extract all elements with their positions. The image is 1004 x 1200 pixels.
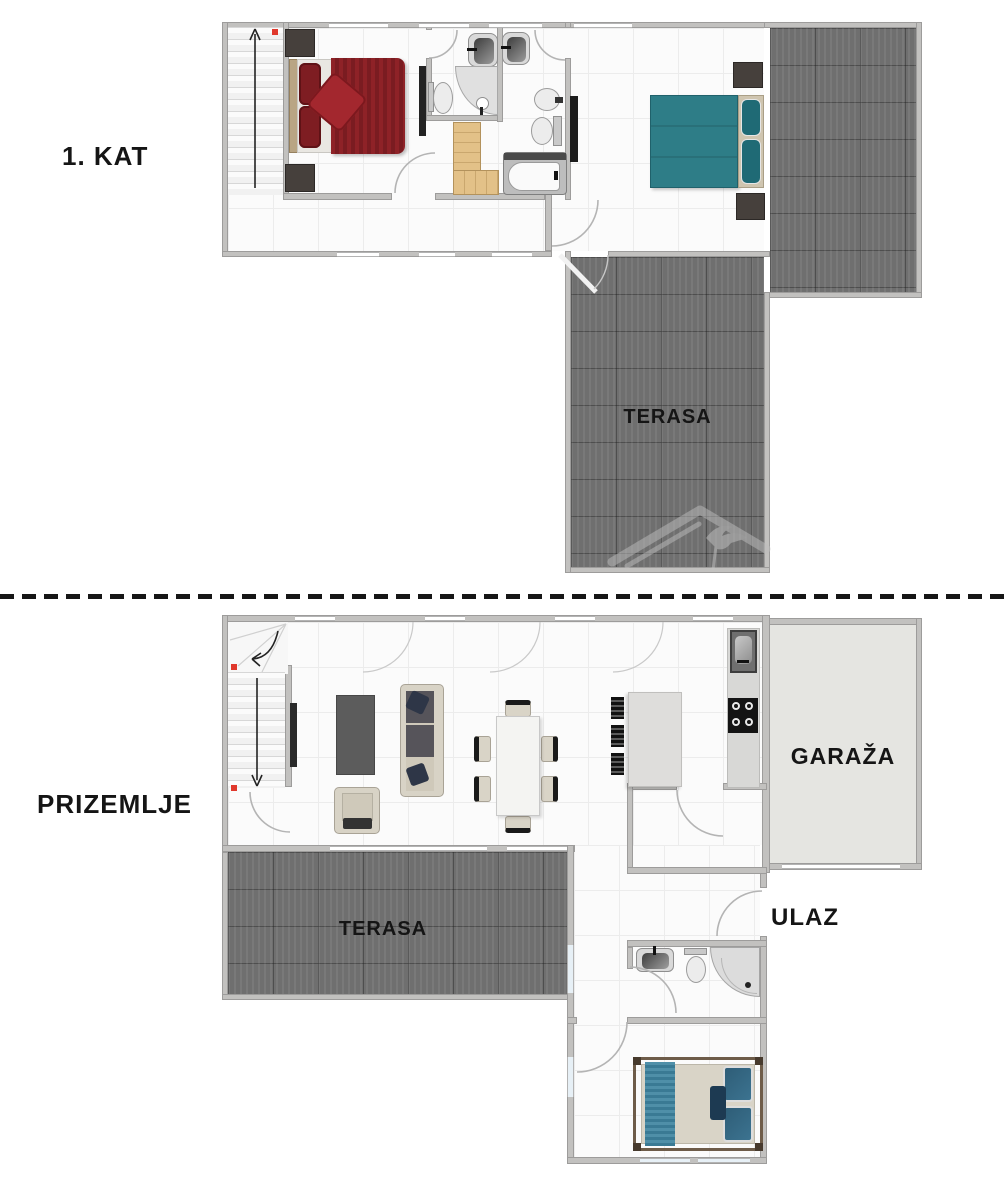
dining-chair (474, 736, 491, 762)
window (567, 945, 574, 993)
wall (916, 618, 922, 870)
garage-door (782, 864, 900, 869)
wall (565, 567, 770, 573)
wall (916, 22, 922, 298)
smoke-detector-dot (272, 29, 278, 35)
window (295, 616, 335, 621)
bed-runner (645, 1062, 675, 1146)
toilet-bowl (531, 117, 553, 145)
bed-duvet (650, 95, 738, 188)
upper-terrace-right (770, 28, 916, 292)
wood-steps (453, 122, 481, 175)
bed-double-teal (650, 95, 764, 188)
terrace-door (507, 846, 567, 851)
garage-label: GARAŽA (770, 743, 916, 770)
cooktop (728, 698, 758, 733)
window-large (330, 846, 487, 851)
bed-double-blue (633, 1057, 763, 1151)
dining-table (496, 716, 540, 816)
toilet-bowl (433, 82, 453, 114)
window (489, 23, 542, 28)
wall (760, 873, 767, 888)
tv-panel (290, 703, 297, 767)
dining-chair (505, 816, 531, 833)
upper-terrace-label: TERASA (571, 406, 764, 429)
window (337, 252, 379, 257)
bar-stool (611, 753, 624, 775)
window (425, 616, 465, 621)
rug-media-bench (336, 695, 375, 775)
wall (608, 251, 770, 257)
entrance-label: ULAZ (771, 904, 839, 932)
wall (627, 947, 633, 969)
floor-plan: 1. KAT (0, 0, 1004, 1200)
floor-divider-dashed-line (0, 594, 1004, 599)
sink (502, 32, 530, 65)
window (567, 1057, 574, 1097)
armchair (334, 787, 380, 834)
bar-stool (611, 697, 624, 719)
wall (764, 22, 922, 28)
bed-pillow (741, 139, 761, 184)
sink (636, 948, 674, 972)
dining-chair (541, 736, 558, 762)
bathtub (503, 152, 567, 195)
dining-chair (474, 776, 491, 802)
staircase-ground (228, 672, 285, 788)
nightstand (733, 62, 763, 88)
bed-cushion (710, 1086, 726, 1120)
wall (426, 115, 503, 121)
kitchen-island (628, 692, 682, 787)
window (419, 252, 455, 257)
tv-panel (419, 66, 426, 136)
ground-terrace-label: TERASA (228, 918, 538, 941)
wood-steps (453, 170, 499, 195)
sofa (400, 684, 444, 797)
bidet (534, 88, 560, 111)
dining-chair (541, 776, 558, 802)
window (693, 616, 733, 621)
ground-floor-title: PRIZEMLJE (37, 789, 192, 820)
staircase-winder (228, 622, 288, 674)
bed-pillow (723, 1106, 753, 1142)
smoke-detector-dot (231, 785, 237, 791)
dining-chair (505, 700, 531, 717)
wall (627, 867, 767, 874)
wall (565, 22, 571, 28)
window (492, 252, 532, 257)
bed-pillow (723, 1066, 753, 1102)
wall (567, 845, 574, 1164)
wall (764, 292, 922, 298)
wall (764, 292, 770, 573)
window (555, 616, 595, 621)
nightstand (736, 193, 765, 220)
wall (762, 615, 770, 873)
toilet-bowl (686, 956, 706, 983)
window (574, 23, 632, 28)
bar-stool (611, 725, 624, 747)
window (698, 1158, 750, 1163)
nightstand (285, 29, 315, 57)
sink (468, 33, 498, 67)
kitchen-sink (730, 630, 757, 673)
wardrobe-panel (570, 96, 578, 162)
bed-double-red (289, 58, 405, 154)
wall (283, 193, 392, 200)
bed-pillow (741, 99, 761, 136)
wall (545, 193, 552, 251)
wall (627, 1017, 767, 1024)
window (640, 1158, 690, 1163)
smoke-detector-dot (231, 664, 237, 670)
wall (627, 783, 633, 873)
wall (222, 994, 573, 1000)
window (419, 23, 469, 28)
wall (627, 940, 767, 947)
toilet (553, 116, 562, 146)
window (329, 23, 388, 28)
nightstand (285, 164, 315, 192)
upper-floor-title: 1. KAT (62, 141, 148, 172)
wall (567, 1017, 577, 1024)
staircase-upper (228, 27, 283, 195)
wall (762, 618, 922, 625)
toilet (684, 948, 707, 955)
